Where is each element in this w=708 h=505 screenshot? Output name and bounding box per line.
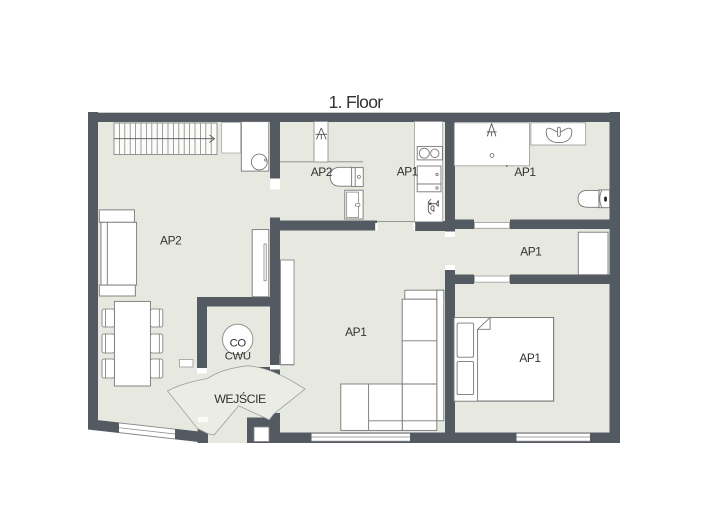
svg-text:AP1: AP1 bbox=[345, 325, 367, 339]
svg-text:AP1: AP1 bbox=[520, 245, 542, 259]
svg-text:AP1: AP1 bbox=[519, 351, 541, 365]
svg-text:AP1: AP1 bbox=[514, 165, 536, 179]
svg-text:WEJŚCIE: WEJŚCIE bbox=[214, 391, 266, 406]
svg-text:AP2: AP2 bbox=[311, 165, 333, 179]
svg-text:AP2: AP2 bbox=[160, 234, 182, 248]
svg-text:AP1: AP1 bbox=[397, 165, 419, 179]
svg-text:1. Floor: 1. Floor bbox=[329, 92, 384, 112]
svg-text:CWU: CWU bbox=[225, 350, 251, 362]
svg-text:CO: CO bbox=[230, 338, 247, 350]
